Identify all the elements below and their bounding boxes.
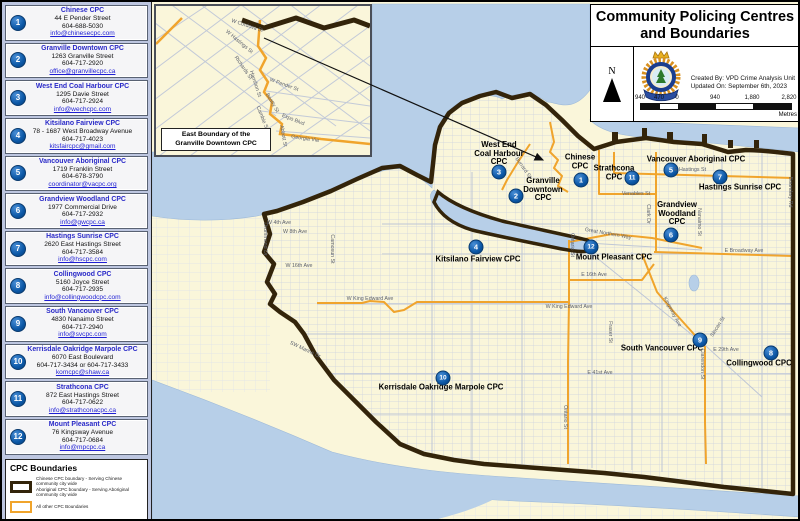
cpc-email-link[interactable]: kitsfaircpc@gmail.com [49, 143, 115, 151]
created-by: Created By: VPD Crime Analysis Unit [691, 75, 795, 83]
cpc-detail-line: 604-688-5030 [62, 23, 103, 31]
cpc-detail-line: 2620 East Hastings Street [44, 241, 121, 249]
cpc-name: Chinese CPC [61, 7, 104, 15]
cpc-directory-item: 12Mount Pleasant CPC76 Kingsway Avenue60… [5, 419, 148, 455]
cpc-detail-line: 604-717-2940 [62, 324, 103, 332]
cpc-detail-line: 78 - 1687 West Broadway Avenue [33, 128, 132, 136]
cpc-name: Mount Pleasant CPC [49, 421, 116, 429]
scale-tick-label: 0 [675, 95, 678, 101]
cpc-detail-line: 604-717-3434 or 604-717-3433 [37, 362, 129, 370]
cpc-detail-line: 604-717-2924 [62, 98, 103, 106]
cpc-email-link[interactable]: info@chinesecpc.com [50, 30, 115, 38]
cpc-detail-line: 872 East Hastings Street [46, 392, 119, 400]
cpc-detail-line: 604-678-3790 [62, 173, 103, 181]
cpc-detail-line: 76 Kingsway Avenue [52, 429, 113, 437]
legend-box: CPC Boundaries Chinese CPC boundary - Se… [5, 459, 148, 520]
cpc-email-link[interactable]: komcpc@shaw.ca [56, 369, 109, 377]
cpc-number-badge: 7 [10, 241, 26, 257]
cpc-detail-line: 604-717-2920 [62, 60, 103, 68]
cpc-email-link[interactable]: info@collingwoodcpc.com [44, 294, 120, 302]
cpc-name: South Vancouver CPC [46, 308, 119, 316]
north-arrow-icon [603, 78, 621, 102]
legend-entry-text: All other CPC Boundaries [36, 504, 88, 510]
cpc-detail-line: 604-717-0684 [62, 437, 103, 445]
cpc-email-link[interactable]: info@hscpc.com [58, 256, 107, 264]
title-panel: Community Policing Centres and Boundarie… [590, 4, 800, 122]
cpc-name: Kerrisdale Oakridge Marpole CPC [27, 346, 137, 354]
cpc-detail-line: 44 E Pender Street [54, 15, 110, 23]
cpc-number-badge: 5 [10, 165, 26, 181]
scale-unit: Metres [779, 112, 797, 118]
cpc-name: Hastings Sunrise CPC [46, 233, 119, 241]
legend-entry: Chinese CPC boundary - Serving Chinese c… [10, 476, 143, 498]
cpc-name: Collingwood CPC [54, 271, 112, 279]
cpc-number-badge: 6 [10, 203, 26, 219]
north-label: N [608, 66, 615, 77]
scale-tick-label: 940 [710, 95, 720, 101]
cpc-detail-line: 4830 Nanaimo Street [51, 316, 113, 324]
cpc-name: Grandview Woodland CPC [39, 196, 126, 204]
orange-boundary-swatch [10, 501, 32, 513]
cpc-directory-item: 2Granville Downtown CPC1263 Granville St… [5, 43, 148, 79]
map-title-line1: Community Policing Centres [591, 9, 799, 26]
cpc-email-link[interactable]: info@mpcpc.ca [60, 444, 106, 452]
cpc-detail-line: 6070 East Boulevard [52, 354, 113, 362]
cpc-directory-item: 11Strathcona CPC872 East Hastings Street… [5, 381, 148, 417]
cpc-detail-line: 1719 Franklin Street [53, 166, 112, 174]
scale-bar: 94047009401,8802,820 Metres [640, 95, 795, 117]
cpc-directory-sidebar: 1Chinese CPC44 E Pender Street604-688-50… [2, 2, 152, 521]
inset-caption-line1: East Boundary of the [163, 131, 269, 140]
cpc-email-link[interactable]: info@svcpc.com [58, 331, 106, 339]
cpc-directory-item: 8Collingwood CPC5160 Joyce Street604-717… [5, 268, 148, 304]
cpc-name: Vancouver Aboriginal CPC [39, 158, 126, 166]
cpc-email-link[interactable]: info@strathconacpc.ca [49, 407, 116, 415]
cpc-directory-item: 3West End Coal Harbour CPC1295 Davie Str… [5, 80, 148, 116]
cpc-directory-item: 7Hastings Sunrise CPC2620 East Hastings … [5, 231, 148, 267]
cpc-detail-line: 1977 Commercial Drive [48, 204, 117, 212]
legend-entry: All other CPC Boundaries [10, 501, 143, 513]
cpc-number-badge: 11 [10, 391, 26, 407]
cpc-number-badge: 10 [10, 354, 26, 370]
legend-entry-text: Chinese CPC boundary - Serving Chinese c… [36, 476, 143, 498]
cpc-directory-item: 10Kerrisdale Oakridge Marpole CPC6070 Ea… [5, 344, 148, 380]
scale-tick-label: 1,880 [744, 95, 759, 101]
map-title-line2: and Boundaries [591, 26, 799, 43]
scale-tick-label: 2,820 [781, 95, 796, 101]
cpc-detail-line: 604-717-3584 [62, 249, 103, 257]
cpc-name: West End Coal Harbour CPC [36, 83, 129, 91]
cpc-number-badge: 8 [10, 278, 26, 294]
scale-labels: 94047009401,8802,820 [640, 95, 795, 103]
cpc-email-link[interactable]: info@wechcpc.com [54, 106, 111, 114]
cpc-directory-item: 1Chinese CPC44 E Pender Street604-688-50… [5, 5, 148, 41]
legend-entries: Chinese CPC boundary - Serving Chinese c… [10, 476, 143, 513]
north-arrow: N [591, 47, 634, 121]
cpc-directory-item: 6Grandview Woodland CPC1977 Commercial D… [5, 193, 148, 229]
map-title: Community Policing Centres and Boundarie… [591, 5, 799, 47]
cpc-number-badge: 4 [10, 128, 26, 144]
cpc-number-badge: 12 [10, 429, 26, 445]
cpc-detail-line: 604-717-0622 [62, 399, 103, 407]
cpc-directory-item: 5Vancouver Aboriginal CPC1719 Franklin S… [5, 156, 148, 192]
cpc-number-badge: 2 [10, 52, 26, 68]
cpc-directory-item: 4Kitsilano Fairview CPC78 - 1687 West Br… [5, 118, 148, 154]
cpc-detail-line: 1295 Davie Street [56, 91, 109, 99]
cpc-detail-line: 604-717-2932 [62, 211, 103, 219]
cpc-email-link[interactable]: coordinator@vacpc.org [48, 181, 116, 189]
legend-title: CPC Boundaries [10, 463, 143, 473]
cpc-detail-line: 1263 Granville Street [52, 53, 114, 61]
cpc-name: Strathcona CPC [56, 384, 108, 392]
cpc-name: Kitsilano Fairview CPC [45, 120, 120, 128]
cpc-number-badge: 3 [10, 90, 26, 106]
cpc-detail-line: 5160 Joyce Street [56, 279, 109, 287]
cpc-directory-list: 1Chinese CPC44 E Pender Street604-688-50… [5, 5, 148, 455]
scale-tick-label: 470 [654, 95, 664, 101]
map-document-page: East Boundary of the Granville Downtown … [0, 0, 800, 521]
cpc-detail-line: 604-717-2935 [62, 286, 103, 294]
scale-bar-segments [640, 103, 792, 110]
scale-tick-label: 940 [635, 95, 645, 101]
cpc-name: Granville Downtown CPC [41, 45, 124, 53]
credits: Created By: VPD Crime Analysis Unit Upda… [691, 75, 795, 91]
inset-map: East Boundary of the Granville Downtown … [154, 4, 372, 157]
cpc-number-badge: 9 [10, 316, 26, 332]
updated-on: Updated On: September 6th, 2023 [691, 83, 795, 91]
cpc-directory-item: 9South Vancouver CPC4830 Nanaimo Street6… [5, 306, 148, 342]
inset-caption: East Boundary of the Granville Downtown … [161, 128, 271, 151]
cpc-detail-line: 604-717-4023 [62, 136, 103, 144]
cpc-email-link[interactable]: info@gwcpc.ca [60, 219, 105, 227]
dark-boundary-swatch [10, 481, 32, 493]
cpc-email-link[interactable]: office@granvillecpc.ca [50, 68, 116, 76]
inset-caption-line2: Granville Downtown CPC [163, 140, 269, 149]
cpc-number-badge: 1 [10, 15, 26, 31]
